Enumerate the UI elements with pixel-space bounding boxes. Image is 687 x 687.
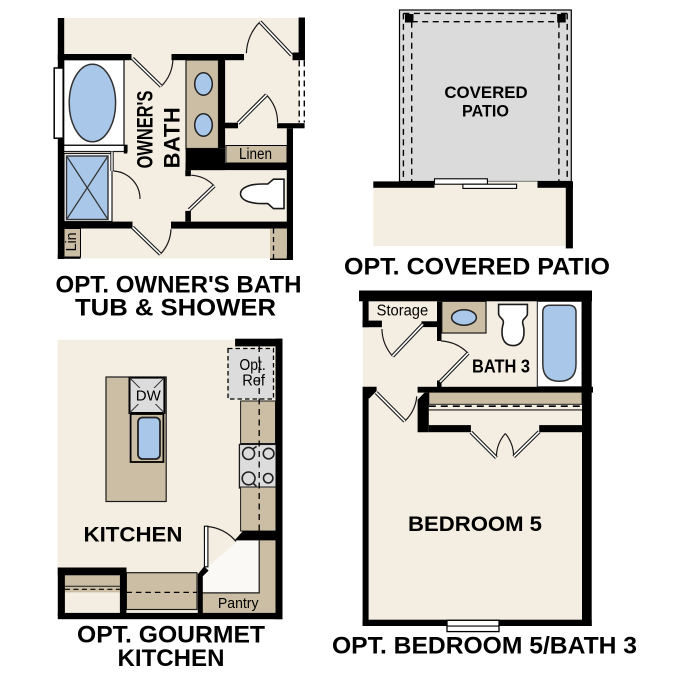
svg-text:PATIO: PATIO — [462, 101, 509, 120]
svg-text:OPT. COVERED PATIO: OPT. COVERED PATIO — [344, 254, 610, 281]
svg-text:TUB & SHOWER: TUB & SHOWER — [75, 295, 276, 322]
svg-text:OWNER'S: OWNER'S — [132, 91, 157, 169]
svg-text:Linen: Linen — [239, 146, 272, 163]
svg-text:COVERED: COVERED — [444, 83, 527, 102]
svg-text:KITCHEN: KITCHEN — [84, 524, 183, 547]
svg-text:Lin: Lin — [63, 232, 80, 251]
svg-text:OPT. BEDROOM 5/BATH 3: OPT. BEDROOM 5/BATH 3 — [332, 633, 637, 660]
svg-text:BEDROOM 5: BEDROOM 5 — [408, 513, 542, 536]
svg-text:DW: DW — [136, 388, 162, 405]
svg-text:Pantry: Pantry — [218, 595, 259, 612]
svg-text:BATH 3: BATH 3 — [472, 357, 530, 377]
svg-text:Ref: Ref — [242, 372, 265, 389]
svg-text:KITCHEN: KITCHEN — [118, 645, 225, 672]
svg-text:Storage: Storage — [377, 302, 429, 319]
svg-text:BATH: BATH — [159, 107, 184, 168]
